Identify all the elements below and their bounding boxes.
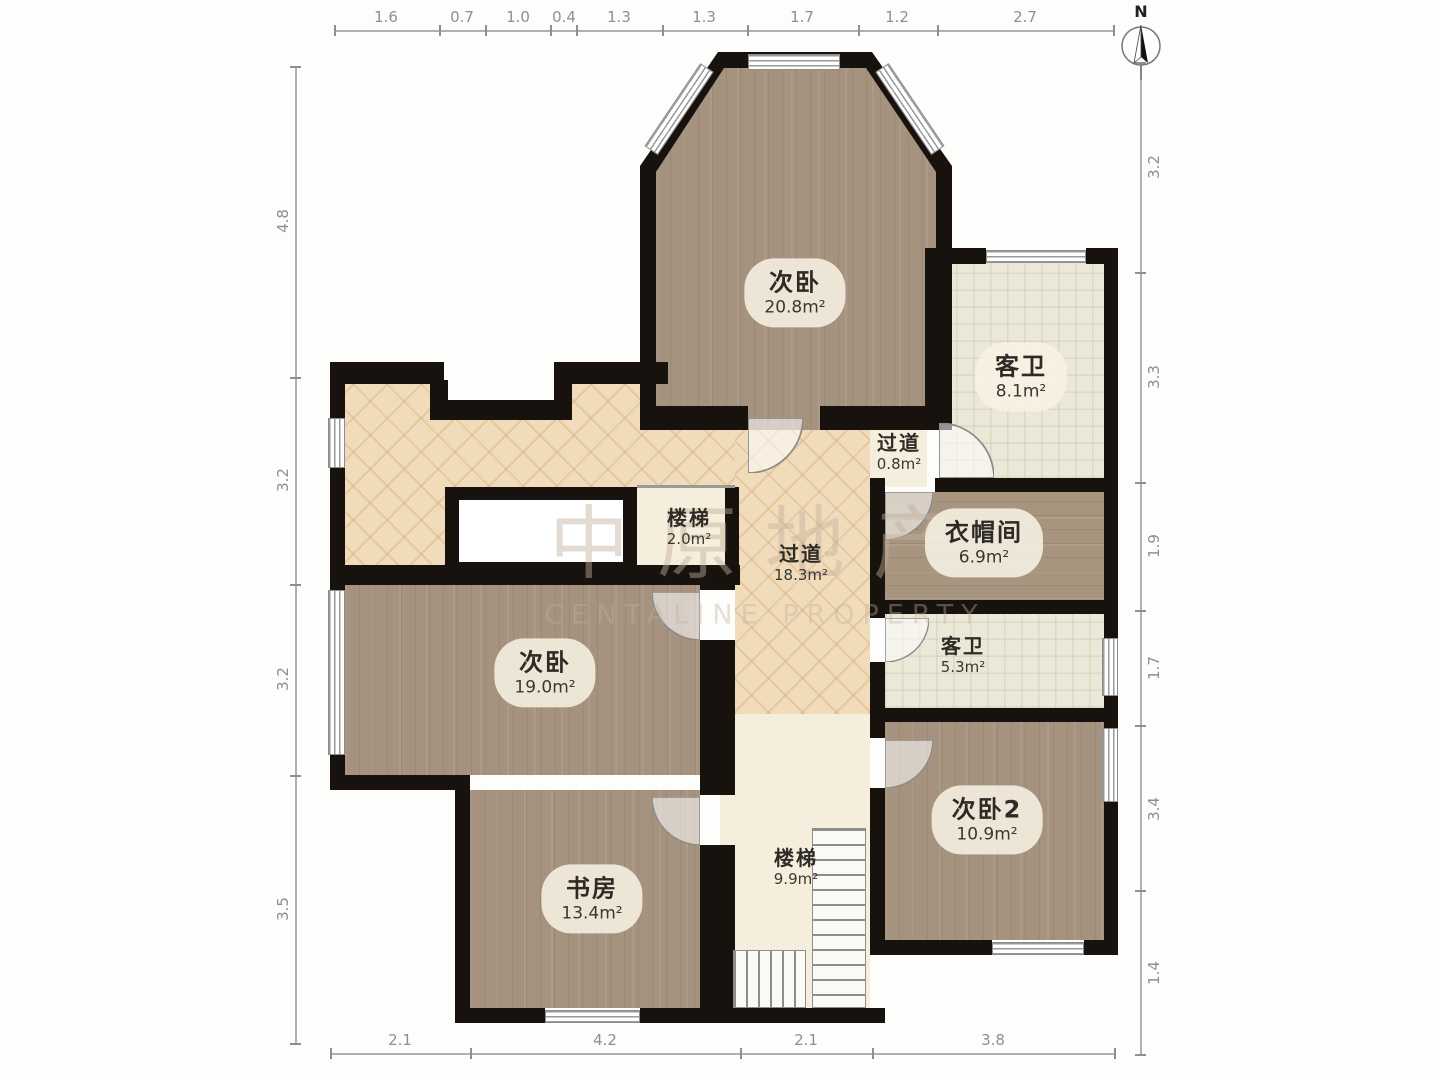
- room-label-guest-bath-top: 客卫8.1m²: [975, 342, 1067, 411]
- dim-line-bottom: [330, 1053, 1115, 1055]
- north-label: N: [1117, 2, 1165, 21]
- wall: [330, 565, 740, 585]
- dim-label: 3.2: [274, 667, 292, 691]
- void-opening: [459, 500, 623, 562]
- wall: [820, 406, 940, 430]
- window: [1102, 638, 1118, 696]
- wall: [330, 468, 345, 578]
- wall: [925, 248, 939, 420]
- wall: [455, 1008, 545, 1023]
- dim-label: 1.3: [692, 8, 716, 26]
- room-label-study: 书房13.4m²: [541, 864, 642, 933]
- outside-patch: [444, 384, 554, 400]
- room-label-mini-stairs: 楼梯2.0m²: [663, 504, 715, 550]
- room-label-bedroom-left: 次卧19.0m²: [494, 638, 595, 707]
- room-label-hallway: 过道18.3m²: [770, 540, 832, 586]
- dim-line-left: [295, 66, 297, 1044]
- door-arc-bedroom2: [885, 740, 933, 788]
- wall: [700, 845, 735, 1022]
- dim-label: 1.7: [790, 8, 814, 26]
- stairs-treads-horizontal: [733, 950, 806, 1008]
- dim-label: 1.4: [1145, 961, 1163, 985]
- room-label-bedroom-top: 次卧20.8m²: [744, 258, 845, 327]
- dim-label: 3.2: [1145, 155, 1163, 179]
- wall: [1084, 940, 1118, 955]
- dim-label: 1.2: [885, 8, 909, 26]
- door-arc-study: [652, 797, 700, 845]
- room-label-guest-bath-mid: 客卫5.3m²: [937, 632, 989, 678]
- wall: [330, 362, 345, 418]
- dim-label: 1.6: [374, 8, 398, 26]
- wall: [640, 406, 748, 430]
- wall: [330, 578, 345, 590]
- wall: [870, 708, 1118, 722]
- wall: [870, 788, 885, 955]
- window: [545, 1010, 640, 1023]
- wall: [700, 565, 735, 590]
- window: [1102, 728, 1118, 802]
- dim-line-top: [334, 30, 1114, 32]
- dim-label: 1.7: [1145, 656, 1163, 680]
- dim-label: 3.4: [1145, 797, 1163, 821]
- door-arc-guest-bath-mid: [885, 618, 929, 662]
- room-label-cloakroom: 衣帽间6.9m²: [925, 508, 1043, 577]
- wall: [870, 600, 1118, 614]
- room-label-stairs: 楼梯9.9m²: [770, 844, 822, 890]
- dim-label: 2.1: [388, 1031, 412, 1049]
- wall: [870, 478, 885, 492]
- window: [328, 590, 345, 755]
- floor-bedroom-top: [656, 68, 936, 430]
- dim-label: 3.2: [274, 468, 292, 492]
- window: [992, 942, 1084, 955]
- wall: [1104, 802, 1118, 955]
- mini-stair-top-line: [637, 485, 735, 488]
- dim-label: 1.9: [1145, 534, 1163, 558]
- dim-label: 0.4: [552, 8, 576, 26]
- wall: [700, 640, 735, 795]
- room-label-bedroom2: 次卧210.9m²: [932, 785, 1043, 854]
- dim-label: 0.7: [450, 8, 474, 26]
- dim-label: 1.3: [607, 8, 631, 26]
- wall: [870, 940, 992, 955]
- wall: [330, 362, 444, 384]
- wall: [925, 248, 986, 264]
- window: [986, 250, 1086, 263]
- wall: [725, 487, 739, 575]
- compass-icon: [1117, 22, 1165, 80]
- dim-line-right: [1140, 62, 1142, 1055]
- compass: N: [1117, 2, 1165, 84]
- dim-label: 2.1: [794, 1031, 818, 1049]
- wall: [444, 400, 566, 420]
- door-arc-bedroom-top: [748, 418, 803, 473]
- wall: [455, 775, 470, 1022]
- door-arc-bedroom-left: [652, 592, 700, 640]
- dim-label: 3.8: [981, 1031, 1005, 1049]
- wall: [554, 362, 668, 384]
- dim-label: 3.3: [1145, 365, 1163, 389]
- wall: [1104, 248, 1118, 638]
- dim-label: 4.2: [593, 1031, 617, 1049]
- stairs-treads-vertical: [812, 828, 866, 1008]
- window: [748, 54, 840, 70]
- door-arc-guest-bath-top: [939, 423, 994, 478]
- dim-label: 3.5: [274, 897, 292, 921]
- wall: [870, 487, 885, 618]
- wall: [330, 775, 470, 790]
- dim-label: 1.0: [506, 8, 530, 26]
- dim-label: 2.7: [1013, 8, 1037, 26]
- wall: [935, 478, 1118, 492]
- room-label-small-corridor: 过道0.8m²: [873, 429, 925, 475]
- window: [328, 418, 345, 468]
- wall: [870, 662, 885, 738]
- wall: [640, 1008, 885, 1023]
- dim-label: 4.8: [274, 209, 292, 233]
- floor-plan: 中原地产 CENTALINE PROPERTY 次卧20.8m² 客卫8.1m²…: [0, 0, 1440, 1080]
